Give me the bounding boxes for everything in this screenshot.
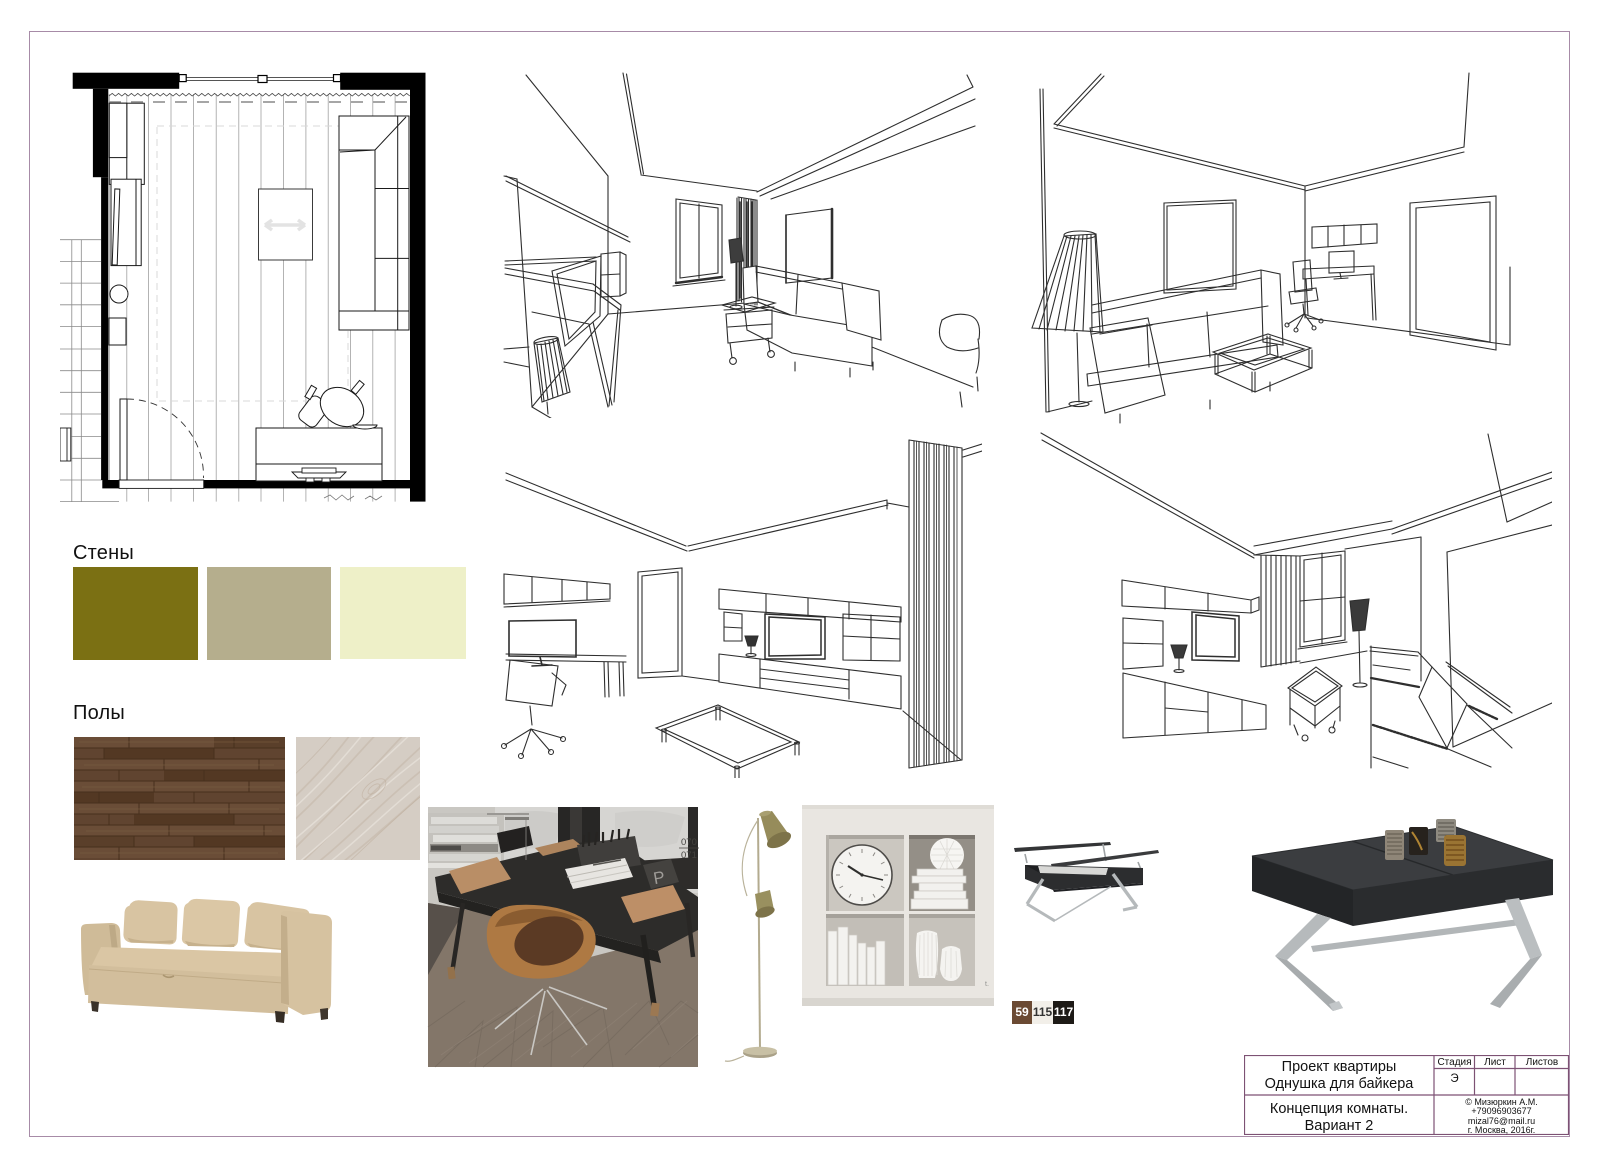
svg-text:070: 070 (681, 837, 697, 848)
svg-text:t.: t. (985, 981, 989, 988)
svg-text:071: 071 (681, 850, 697, 861)
